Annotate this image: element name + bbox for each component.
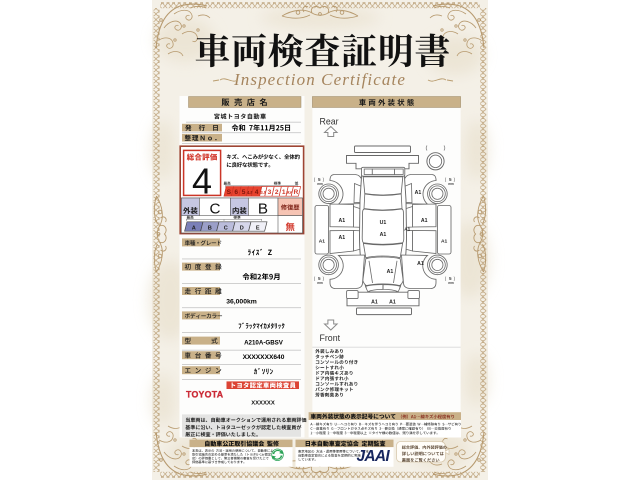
svg-text:Rear: Rear <box>320 117 339 127</box>
svg-text:TOYOTA: TOYOTA <box>186 389 224 399</box>
svg-text:A1: A1 <box>421 218 428 224</box>
svg-text:2: 2 <box>275 189 279 196</box>
svg-text:A210A-GBSV: A210A-GBSV <box>244 339 284 346</box>
svg-text:C: C <box>210 201 221 218</box>
svg-text:6: 6 <box>234 189 238 196</box>
svg-text:JAAI: JAAI <box>357 448 391 465</box>
svg-text:A1: A1 <box>441 239 448 245</box>
svg-text:XXXXXX: XXXXXX <box>251 400 275 406</box>
svg-text:B: B <box>258 201 268 218</box>
svg-text:A1: A1 <box>417 261 424 267</box>
svg-text:mm: mm <box>448 182 454 186</box>
svg-text:A1: A1 <box>338 235 345 241</box>
svg-text:A1: A1 <box>415 190 422 196</box>
svg-text:E: E <box>256 225 260 231</box>
svg-text:4: 4 <box>192 161 212 202</box>
svg-text:A1: A1 <box>389 299 396 305</box>
svg-text:mm: mm <box>317 281 323 285</box>
svg-text:A1: A1 <box>319 239 326 245</box>
svg-text:5: 5 <box>242 189 246 196</box>
svg-text:R: R <box>294 189 299 196</box>
svg-text:Inspection Certificate: Inspection Certificate <box>233 70 406 89</box>
svg-text:C: C <box>224 225 228 231</box>
svg-text:3: 3 <box>268 189 272 196</box>
svg-text:A1: A1 <box>380 232 387 238</box>
svg-text:B: B <box>208 225 212 231</box>
svg-text:Front: Front <box>320 333 341 343</box>
svg-text:S: S <box>227 189 232 196</box>
svg-text:36,000km: 36,000km <box>226 299 257 306</box>
svg-text:mm: mm <box>448 281 454 285</box>
svg-text:D: D <box>240 225 244 231</box>
svg-text:XXXXXXX640: XXXXXXX640 <box>243 354 285 361</box>
svg-text:mm: mm <box>317 182 323 186</box>
svg-text:A1: A1 <box>387 269 394 275</box>
svg-text:U1: U1 <box>380 220 387 226</box>
svg-text:A1: A1 <box>371 299 378 305</box>
svg-text:4: 4 <box>255 189 259 196</box>
svg-text:A1: A1 <box>338 218 345 224</box>
svg-text:1: 1 <box>282 189 286 196</box>
svg-text:A: A <box>192 225 196 231</box>
svg-text:A1: A1 <box>404 226 410 231</box>
